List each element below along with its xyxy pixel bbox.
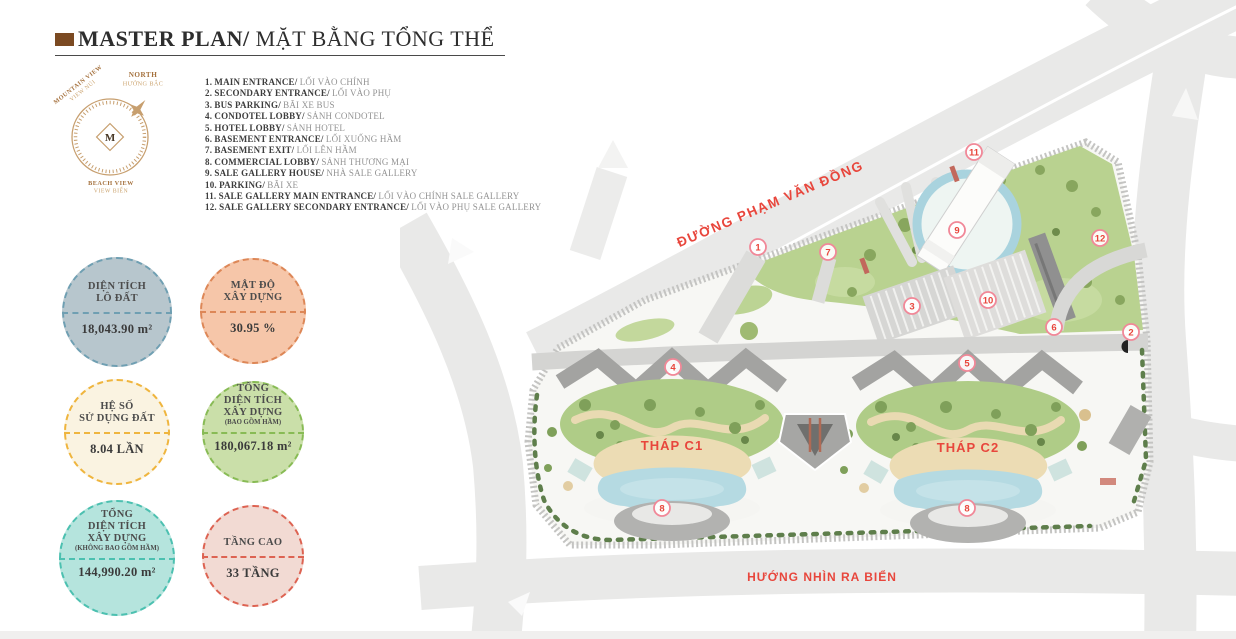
compass-mountain-label-en: MOUNTAIN VIEW (52, 63, 104, 105)
svg-text:10: 10 (983, 295, 994, 306)
site-plan-drawing: ĐƯỜNG PHẠM VĂN ĐỒNG THÁP C1 THÁP C2 HƯỚN… (400, 0, 1236, 639)
stat-badge-gfa-excl-basement: TỔNGDIỆN TÍCH XÂY DỰNG(KHÔNG BAO GỒM HẦM… (59, 500, 175, 616)
marker-5: 5 (959, 355, 975, 371)
compass-north-label-vi: HƯỚNG BẮC (123, 80, 164, 88)
stat-value: 180,067.18 m² (214, 439, 291, 453)
title-bullet-square (55, 33, 74, 46)
stat-value: 33 TẦNG (226, 566, 280, 580)
marker-8-right: 8 (959, 500, 975, 516)
svg-text:8: 8 (659, 503, 664, 514)
compass-beach-label-en: BEACH VIEW (88, 180, 134, 187)
stat-value: 144,990.20 m² (78, 565, 155, 579)
svg-text:2: 2 (1128, 327, 1133, 338)
marker-11: 11 (966, 144, 982, 160)
svg-text:3: 3 (909, 301, 914, 312)
marker-4: 4 (665, 359, 681, 375)
marker-1: 1 (750, 239, 766, 255)
site-plan: ĐƯỜNG PHẠM VĂN ĐỒNG THÁP C1 THÁP C2 HƯỚN… (400, 0, 1236, 639)
marker-10: 10 (980, 292, 996, 308)
svg-text:8: 8 (964, 503, 969, 514)
svg-text:9: 9 (954, 225, 959, 236)
stat-badge-height: TẦNG CAO 33 TẦNG (202, 505, 304, 607)
sea-view-label: HƯỚNG NHÌN RA BIỂN (747, 569, 897, 584)
svg-text:5: 5 (964, 358, 970, 369)
road-arrow-icon (448, 238, 474, 264)
marker-12: 12 (1092, 230, 1108, 246)
stat-badge-land-use-ratio: HỆ SỐSỬ DỤNG ĐẤT 8.04 LẦN (64, 379, 170, 485)
marker-6: 6 (1046, 319, 1062, 335)
svg-text:11: 11 (969, 147, 980, 158)
marker-2: 2 (1123, 324, 1139, 340)
page-bottom-strip (0, 631, 1236, 639)
svg-text:4: 4 (670, 362, 676, 373)
stat-value: 8.04 LẦN (90, 442, 144, 456)
svg-text:12: 12 (1095, 233, 1106, 244)
marker-9: 9 (949, 222, 965, 238)
marker-8-left: 8 (654, 500, 670, 516)
svg-text:6: 6 (1051, 322, 1056, 333)
tower-c1-label: THÁP C1 (641, 438, 703, 453)
compass-north-label-en: NORTH (129, 71, 158, 79)
stat-value: 30.95 % (230, 321, 276, 335)
road-arrow-icon (598, 140, 628, 168)
marker-3: 3 (904, 298, 920, 314)
compass-rose: MOUNTAIN VIEW VIEW NÚI NORTH HƯỚNG BẮC B… (48, 62, 188, 212)
page-title-en: MASTER PLAN/ (78, 26, 250, 51)
stat-value: 18,043.90 m² (82, 322, 153, 336)
master-plan-page: MASTER PLAN/ MẶT BẰNG TỔNG THỂ MOUNTAIN … (0, 0, 1236, 639)
stat-badge-density: MẬT ĐỘXÂY DỰNG 30.95 % (200, 258, 306, 364)
stat-badge-gfa-incl-basement: TỔNGDIỆN TÍCH XÂY DỰNG(BAO GỒM HẦM) 180,… (202, 381, 304, 483)
svg-text:7: 7 (825, 247, 830, 258)
compass-beach-label-vi: VIEW BIỂN (94, 187, 129, 195)
compass-icon: MOUNTAIN VIEW VIEW NÚI NORTH HƯỚNG BẮC B… (48, 62, 188, 207)
svg-text:M: M (105, 132, 116, 144)
svg-text:1: 1 (755, 242, 761, 253)
tower-c2-label: THÁP C2 (937, 440, 999, 455)
marker-7: 7 (820, 244, 836, 260)
stat-badge-land-area: DIỆN TÍCHLÔ ĐẤT 18,043.90 m² (62, 257, 172, 367)
